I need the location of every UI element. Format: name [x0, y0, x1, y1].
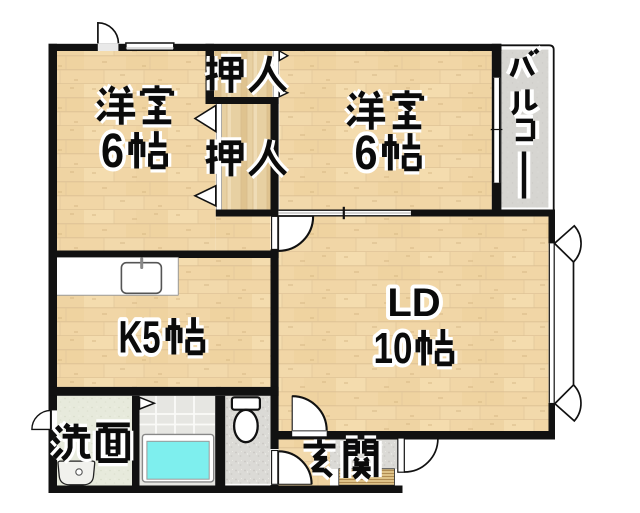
svg-text:LD: LD	[387, 281, 440, 325]
svg-text:K5: K5	[119, 312, 161, 363]
svg-text:10: 10	[374, 324, 413, 373]
svg-text:6: 6	[355, 127, 378, 180]
svg-text:6: 6	[101, 125, 124, 178]
